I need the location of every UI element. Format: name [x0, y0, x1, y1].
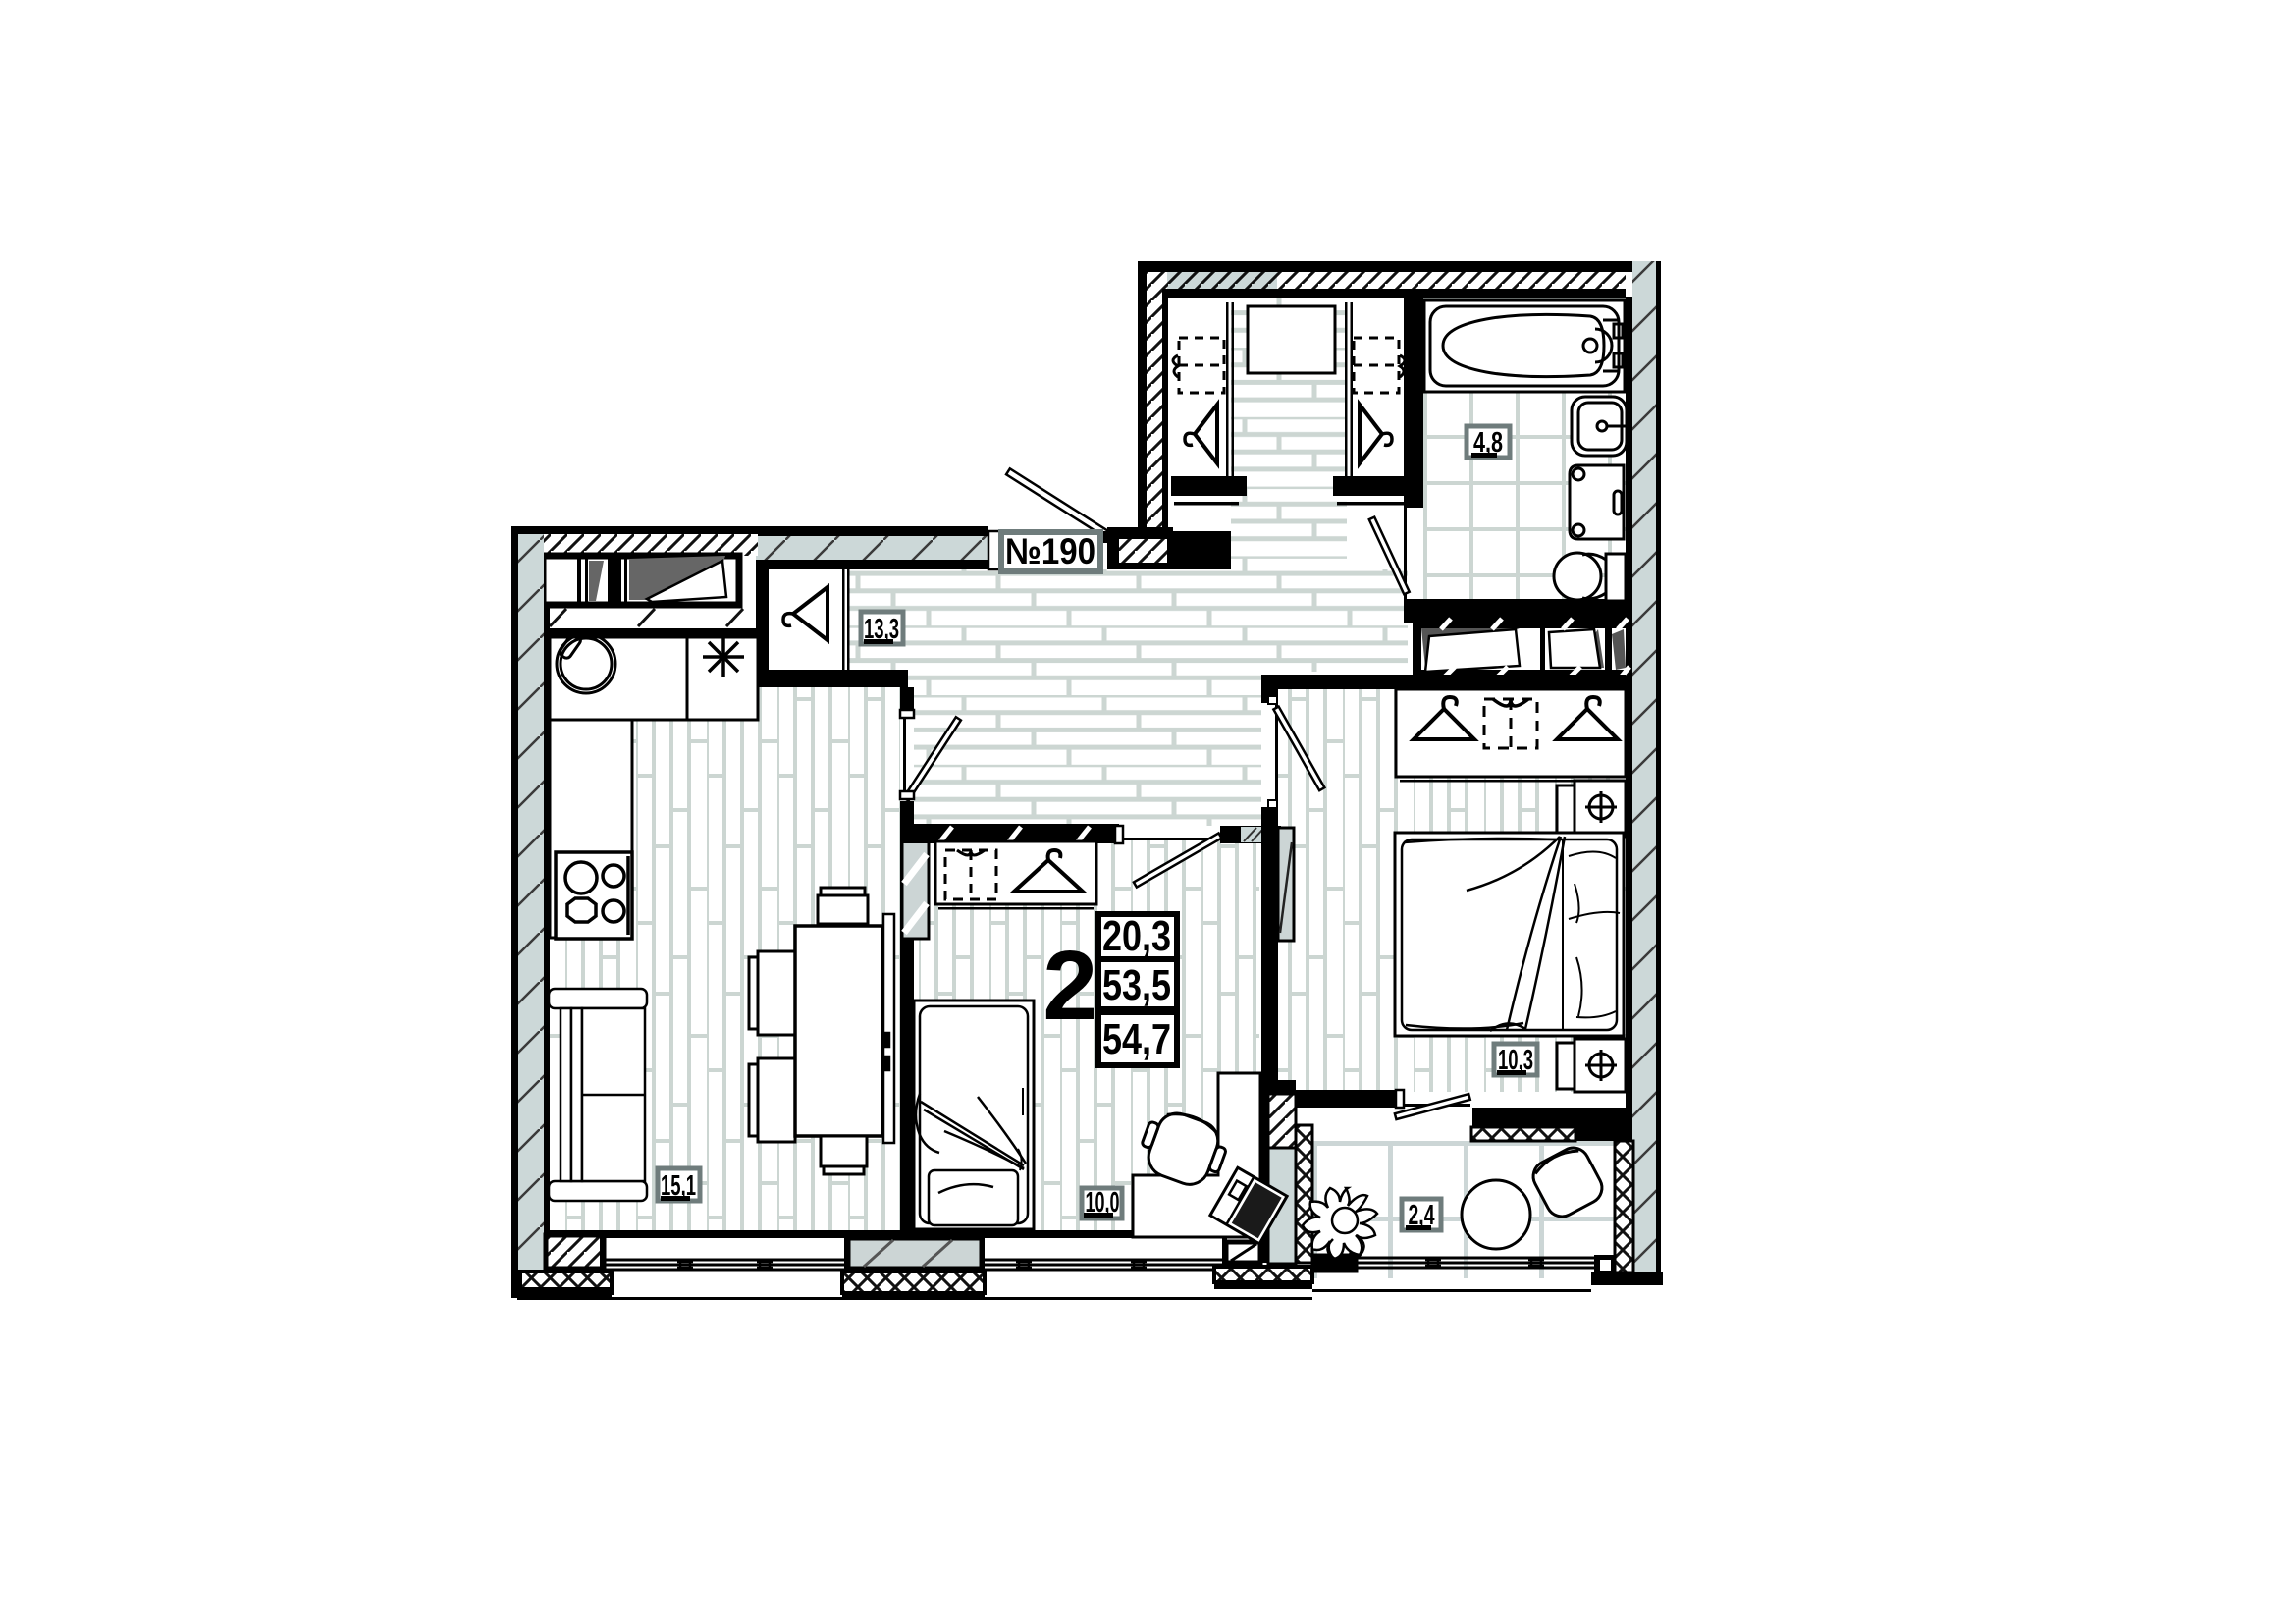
svg-text:53,5: 53,5 — [1102, 961, 1171, 1009]
svg-text:20,3: 20,3 — [1102, 912, 1171, 960]
svg-text:№190: №190 — [1005, 531, 1095, 571]
svg-text:54,7: 54,7 — [1102, 1015, 1171, 1063]
svg-text:2: 2 — [1042, 931, 1097, 1041]
